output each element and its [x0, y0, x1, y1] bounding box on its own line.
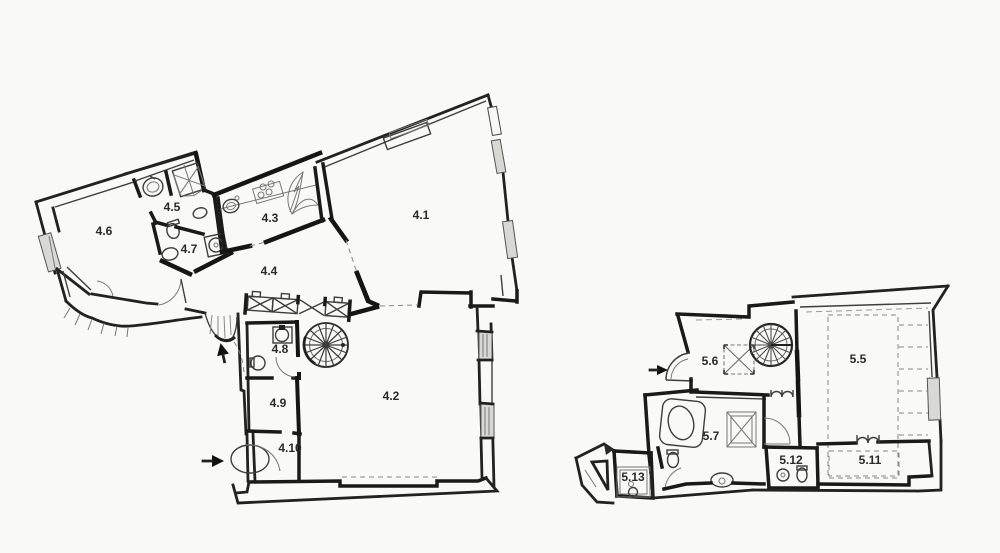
svg-text:5.13: 5.13: [621, 470, 645, 484]
svg-text:4.4: 4.4: [261, 264, 278, 278]
svg-text:5.12: 5.12: [779, 453, 803, 467]
svg-text:4.8: 4.8: [272, 342, 289, 356]
svg-text:4.7: 4.7: [181, 242, 198, 256]
svg-text:4.6: 4.6: [96, 224, 113, 238]
svg-text:4.1: 4.1: [413, 208, 430, 222]
svg-text:5.7: 5.7: [703, 429, 720, 443]
svg-text:5.11: 5.11: [859, 453, 882, 467]
svg-text:5.5: 5.5: [850, 352, 867, 366]
svg-text:4.3: 4.3: [262, 211, 279, 225]
svg-text:5.6: 5.6: [702, 354, 719, 368]
svg-text:4.2: 4.2: [383, 389, 400, 403]
svg-text:4.10: 4.10: [278, 441, 302, 455]
svg-text:4.9: 4.9: [270, 396, 287, 410]
svg-text:4.5: 4.5: [164, 200, 181, 214]
